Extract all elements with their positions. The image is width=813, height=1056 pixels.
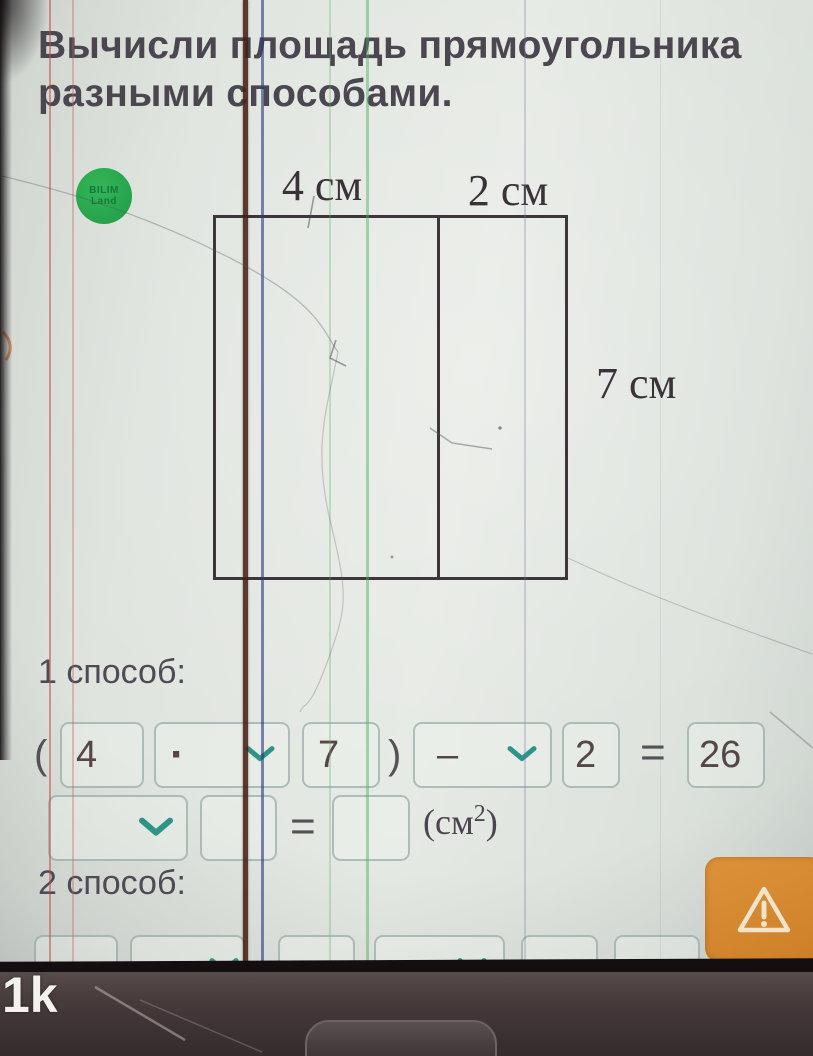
screen-left-edge-shadow xyxy=(0,0,12,760)
open-paren: ( xyxy=(34,733,47,778)
chevron-down-icon xyxy=(507,746,537,764)
page-title: Вычисли площадь прямоугольника разными с… xyxy=(38,22,742,118)
watermark-text: 1k xyxy=(2,966,58,1024)
method2-heading: 2 способ: xyxy=(38,864,186,903)
logo-text-line2: Land xyxy=(91,196,117,207)
unit-suffix: ) xyxy=(486,802,498,842)
home-button[interactable] xyxy=(305,1020,497,1056)
method1-heading: 1 способ: xyxy=(38,653,186,692)
unit-prefix: (см xyxy=(423,802,474,842)
result-value: 26 xyxy=(689,734,741,777)
factor2-field[interactable]: 7 xyxy=(302,722,380,788)
bilimland-logo-icon: BILIM Land xyxy=(76,168,132,224)
subtrahend-field[interactable]: 2 xyxy=(562,722,620,788)
diagram-label-4cm: 4 см xyxy=(252,160,392,211)
operator1-value: · xyxy=(156,730,185,780)
close-paren: ) xyxy=(388,733,401,778)
result-field[interactable]: 26 xyxy=(687,722,765,788)
operator1-dropdown[interactable]: · xyxy=(154,722,290,788)
equals-sign: = xyxy=(640,728,666,778)
row2-equals-sign: = xyxy=(290,802,316,852)
operator2-value: – xyxy=(415,734,458,777)
chevron-down-icon xyxy=(245,746,275,764)
logo-text-line1: BILIM xyxy=(89,185,119,196)
row2-dropdown[interactable] xyxy=(48,795,188,861)
method2-field-2[interactable] xyxy=(278,935,355,963)
chevron-down-icon xyxy=(139,818,173,838)
crack-line xyxy=(660,0,661,963)
warning-button[interactable] xyxy=(705,857,813,962)
diagram-label-2cm: 2 см xyxy=(438,165,578,216)
method2-field-1[interactable] xyxy=(34,935,118,963)
page-title-line1: Вычисли площадь прямоугольника xyxy=(38,22,742,70)
rectangle-diagram xyxy=(213,215,568,580)
factor1-field[interactable]: 4 xyxy=(60,722,144,788)
diagram-label-7cm: 7 см xyxy=(596,358,706,409)
operator2-dropdown[interactable]: – xyxy=(413,722,552,788)
factor1-value: 4 xyxy=(62,734,97,777)
method2-dropdown-1[interactable] xyxy=(130,935,245,963)
device-screen: Вычисли площадь прямоугольника разными с… xyxy=(0,0,813,963)
factor2-value: 7 xyxy=(304,734,339,777)
warning-icon xyxy=(734,882,794,938)
rectangle-divider-line xyxy=(437,215,440,580)
unit-label: (см2) xyxy=(423,801,498,843)
device-photo: Вычисли площадь прямоугольника разными с… xyxy=(0,0,813,1056)
row2-field2[interactable] xyxy=(332,795,410,861)
subtrahend-value: 2 xyxy=(564,734,596,777)
unit-exponent: 2 xyxy=(474,801,486,827)
page-title-line2: разными способами. xyxy=(38,70,742,118)
row2-field1[interactable] xyxy=(200,795,277,861)
